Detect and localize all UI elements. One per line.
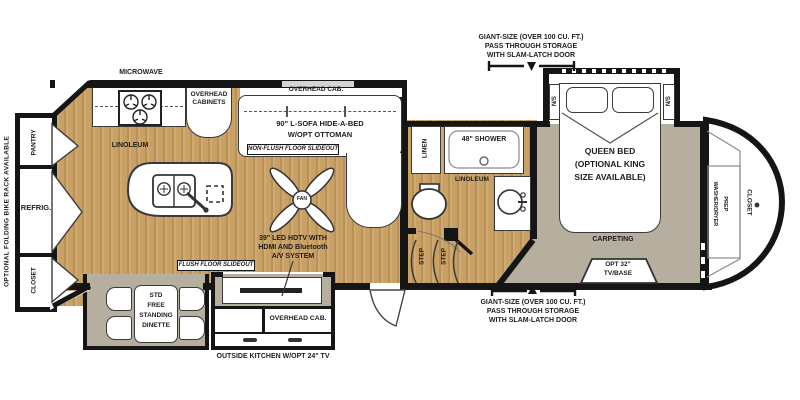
overhead-cabinets-label-2: CABINETS — [187, 100, 231, 107]
range-stove — [119, 91, 161, 125]
toilet — [412, 184, 446, 219]
storage-top-label-2: PASS THROUGH STORAGE — [451, 43, 611, 50]
pantry-door-wedge — [52, 124, 78, 166]
nightstand-right-label: N/S — [666, 86, 672, 116]
queen-bed-label-1: QUEEN BED — [555, 147, 665, 156]
linoleum-kitchen-label: LINOLEUM — [100, 142, 160, 149]
fan-label: FAN — [288, 197, 316, 202]
kitchen-island — [128, 163, 232, 216]
sofa-label-2: W/OPT OTTOMAN — [248, 131, 392, 139]
tv-label-2: HDMI AND Bluetooth — [233, 244, 353, 251]
outside-kitchen-label: OUTSIDE KITCHEN W/OPT 24" TV — [203, 353, 343, 360]
bike-rack-label: OPTIONAL FOLDING BIKE RACK AVAILABLE — [5, 111, 12, 311]
nightstand-left-label: N/S — [552, 86, 558, 116]
queen-bed-label-3: SIZE AVAILABLE) — [555, 173, 665, 182]
washer-dryer-label-1: WASHER/DRYER — [711, 174, 717, 234]
opt-tv-label-1: OPT 32" — [588, 262, 648, 269]
sofa-label-1: 90" L-SOFA HIDE-A-BED — [248, 120, 392, 128]
carpeting-label: CARPETING — [578, 236, 648, 243]
queen-bed-label-2: (OPTIONAL KING — [555, 160, 665, 169]
opt-tv-label-2: TV/BASE — [588, 271, 648, 278]
storage-bracket-top — [489, 61, 574, 71]
storage-bottom-label-1: GIANT-SIZE (OVER 100 CU. FT.) — [453, 299, 613, 306]
storage-top-label-1: GIANT-SIZE (OVER 100 CU. FT.) — [451, 34, 611, 41]
entry-door — [370, 290, 405, 326]
shower-label: 48" SHOWER — [452, 136, 516, 143]
step-label-1: STEP — [420, 231, 427, 281]
dinette-label-2: FREE — [134, 303, 178, 310]
non-flush-slideout-tag: NON-FLUSH FLOOR SLIDEOUT — [247, 144, 339, 155]
plan-line-art — [0, 0, 800, 400]
bedroom-angled-wall — [497, 240, 533, 287]
tv-label-1: 39" LED HDTV WITH — [233, 235, 353, 242]
pantry-label: PANTRY — [32, 117, 39, 167]
dinette-label-4: DINETTE — [134, 323, 178, 330]
step-label-2: STEP — [442, 231, 449, 281]
overhead-cab-outside-label: OVERHEAD CAB. — [265, 315, 331, 322]
microwave-label: MICROWAVE — [101, 69, 181, 76]
washer-dryer-label-2: PREP — [721, 174, 727, 234]
linoleum-bath-label: LINOLEUM — [444, 177, 500, 184]
closet-front-label: CLOSET — [745, 172, 752, 232]
overhead-cabinets-label-1: OVERHEAD — [187, 92, 231, 99]
dinette-label-1: STD — [134, 293, 178, 300]
linen-label: LINEN — [423, 123, 430, 173]
bath-sink — [498, 190, 527, 214]
storage-bottom-label-3: WITH SLAM-LATCH DOOR — [453, 317, 613, 324]
refrig-label: REFRIG. — [17, 204, 55, 212]
overhead-cab-sofa-label: OVERHEAD CAB. — [256, 87, 376, 94]
closet-rear-label: CLOSET — [32, 255, 39, 305]
rv-floor-plan: MICROWAVE OVERHEAD CABINETS OVERHEAD CAB… — [0, 0, 800, 400]
dinette-label-3: STANDING — [134, 313, 178, 320]
storage-top-label-3: WITH SLAM-LATCH DOOR — [451, 52, 611, 59]
storage-bottom-label-2: PASS THROUGH STORAGE — [453, 308, 613, 315]
flush-slideout-tag: FLUSH FLOOR SLIDEOUT — [177, 260, 255, 271]
tv-label-3: A/V SYSTEM — [233, 253, 353, 260]
storage-bracket-bottom — [492, 285, 575, 296]
refrig-door-wedge — [52, 172, 82, 252]
